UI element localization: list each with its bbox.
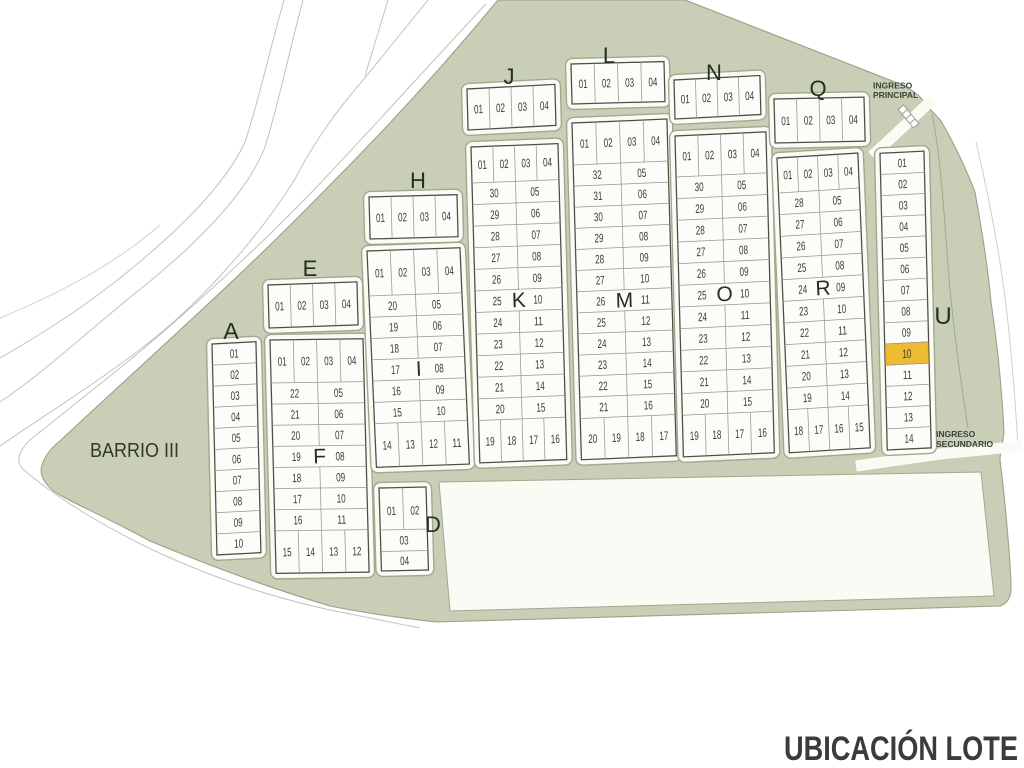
svg-text:20: 20 [495,402,505,416]
svg-text:12: 12 [741,330,751,344]
svg-text:03: 03 [627,135,637,149]
svg-text:24: 24 [493,316,503,330]
svg-text:04: 04 [347,354,357,368]
svg-text:15: 15 [643,377,653,391]
svg-text:05: 05 [737,178,747,192]
svg-text:22: 22 [699,353,709,367]
svg-text:Q: Q [809,76,826,101]
svg-text:02: 02 [602,76,612,90]
svg-text:06: 06 [433,319,443,333]
svg-text:04: 04 [849,113,859,127]
svg-text:03: 03 [826,113,836,127]
svg-text:29: 29 [695,202,705,216]
svg-text:02: 02 [398,265,408,279]
svg-text:04: 04 [899,219,908,233]
svg-text:20: 20 [588,432,598,446]
svg-text:04: 04 [342,297,352,311]
svg-text:04: 04 [745,89,754,103]
svg-text:26: 26 [697,267,707,281]
svg-text:21: 21 [290,408,300,422]
svg-text:11: 11 [903,368,912,382]
svg-text:01: 01 [376,211,386,225]
svg-text:16: 16 [293,513,303,527]
svg-text:13: 13 [329,545,339,559]
svg-text:03: 03 [324,354,334,368]
svg-text:01: 01 [375,266,385,280]
svg-text:19: 19 [690,429,700,443]
svg-text:05: 05 [530,185,540,199]
svg-text:11: 11 [741,308,751,322]
svg-text:J: J [504,64,515,89]
svg-text:23: 23 [598,358,608,372]
svg-text:O: O [716,283,733,307]
svg-text:18: 18 [794,424,804,439]
svg-text:07: 07 [335,428,345,442]
svg-text:18: 18 [507,434,517,448]
svg-text:19: 19 [612,431,622,445]
svg-text:07: 07 [638,208,648,222]
svg-text:05: 05 [232,431,241,445]
svg-text:18: 18 [292,471,302,485]
svg-text:INGRESO: INGRESO [936,429,976,439]
svg-text:23: 23 [698,331,708,345]
svg-text:28: 28 [696,223,706,237]
svg-text:25: 25 [797,261,807,276]
svg-text:D: D [425,512,441,537]
svg-text:05: 05 [637,166,647,180]
svg-text:07: 07 [531,228,541,242]
svg-text:08: 08 [532,249,542,263]
svg-text:08: 08 [434,361,444,375]
svg-text:13: 13 [406,437,416,451]
svg-text:09: 09 [533,271,543,285]
svg-text:01: 01 [898,156,907,170]
svg-text:12: 12 [429,437,439,451]
svg-text:13: 13 [535,357,545,371]
svg-text:SECUNDARIO: SECUNDARIO [936,439,994,449]
svg-text:14: 14 [382,438,392,452]
svg-text:23: 23 [494,337,504,351]
svg-text:03: 03 [728,147,738,161]
svg-text:04: 04 [400,554,410,568]
svg-text:11: 11 [452,436,462,450]
svg-text:11: 11 [534,314,544,328]
svg-text:17: 17 [659,429,669,443]
svg-text:21: 21 [495,380,505,394]
svg-text:06: 06 [232,452,241,466]
svg-text:10: 10 [640,271,650,285]
svg-text:19: 19 [389,320,399,334]
svg-text:10: 10 [336,492,346,506]
svg-text:30: 30 [489,186,499,200]
svg-text:32: 32 [593,168,603,182]
svg-text:16: 16 [834,421,844,436]
svg-text:12: 12 [839,345,849,360]
svg-text:09: 09 [435,383,445,397]
svg-text:02: 02 [496,101,505,115]
svg-text:E: E [303,256,318,281]
svg-text:02: 02 [603,136,613,150]
svg-text:15: 15 [536,400,546,414]
svg-text:29: 29 [490,208,500,222]
svg-text:29: 29 [594,231,604,245]
svg-text:09: 09 [639,250,649,264]
svg-text:14: 14 [642,356,652,370]
svg-text:14: 14 [904,431,913,445]
svg-text:14: 14 [306,545,316,559]
svg-text:03: 03 [319,298,329,312]
svg-text:02: 02 [301,354,311,368]
svg-text:08: 08 [901,304,910,318]
svg-text:04: 04 [750,146,760,160]
svg-text:14: 14 [536,379,546,393]
svg-text:13: 13 [742,351,752,365]
svg-text:I: I [415,358,422,381]
svg-text:U: U [934,303,951,330]
svg-text:13: 13 [642,335,652,349]
svg-text:25: 25 [597,316,607,330]
svg-text:27: 27 [596,273,606,287]
svg-text:16: 16 [392,384,402,398]
svg-text:27: 27 [696,245,706,259]
svg-text:14: 14 [742,373,752,387]
svg-text:18: 18 [390,341,400,355]
svg-text:08: 08 [835,258,845,273]
svg-text:23: 23 [799,304,809,319]
svg-text:24: 24 [798,282,808,297]
svg-text:15: 15 [392,405,402,419]
svg-text:02: 02 [297,298,307,312]
svg-text:03: 03 [625,76,635,90]
svg-text:21: 21 [801,347,811,362]
svg-text:04: 04 [442,209,452,223]
svg-text:05: 05 [334,386,344,400]
svg-text:10: 10 [837,302,847,317]
svg-text:17: 17 [735,427,745,441]
svg-text:02: 02 [410,503,420,517]
svg-text:21: 21 [599,400,609,414]
svg-text:10: 10 [533,292,543,306]
svg-text:M: M [615,289,633,313]
svg-text:04: 04 [543,155,553,169]
svg-text:28: 28 [595,252,605,266]
svg-text:16: 16 [644,398,654,412]
svg-text:INGRESO: INGRESO [873,81,913,91]
svg-text:18: 18 [712,428,722,442]
svg-text:17: 17 [391,363,401,377]
svg-text:01: 01 [474,102,483,116]
svg-text:04: 04 [445,264,455,278]
svg-text:30: 30 [594,210,604,224]
svg-text:03: 03 [518,100,527,114]
svg-text:25: 25 [492,294,502,308]
svg-text:02: 02 [803,167,813,182]
svg-text:02: 02 [230,368,239,382]
svg-text:16: 16 [551,432,561,446]
svg-text:24: 24 [698,310,708,324]
svg-text:03: 03 [899,198,908,212]
svg-text:01: 01 [277,355,287,369]
svg-text:30: 30 [694,180,704,194]
svg-text:08: 08 [233,494,242,508]
svg-text:22: 22 [290,386,300,400]
svg-text:06: 06 [334,407,344,421]
svg-text:03: 03 [399,533,409,547]
svg-text:12: 12 [352,544,362,558]
svg-text:05: 05 [832,193,842,208]
svg-text:02: 02 [702,91,711,105]
svg-text:02: 02 [705,148,715,162]
svg-text:05: 05 [900,241,909,255]
svg-text:03: 03 [421,265,431,279]
svg-text:R: R [815,277,831,301]
svg-text:09: 09 [739,265,749,279]
svg-text:07: 07 [901,283,910,297]
svg-text:19: 19 [485,434,495,448]
svg-text:BARRIO III: BARRIO III [90,440,179,462]
svg-text:10: 10 [902,347,911,361]
svg-text:01: 01 [781,114,791,128]
svg-text:27: 27 [491,251,501,265]
svg-text:17: 17 [529,433,539,447]
svg-text:06: 06 [738,200,748,214]
svg-text:01: 01 [578,77,588,91]
svg-text:09: 09 [336,470,346,484]
svg-text:15: 15 [743,395,753,409]
svg-text:01: 01 [681,92,690,106]
svg-text:13: 13 [904,410,913,424]
svg-text:22: 22 [598,379,608,393]
svg-text:10: 10 [234,536,243,550]
svg-text:01: 01 [682,149,692,163]
svg-text:20: 20 [700,396,710,410]
svg-text:12: 12 [534,336,544,350]
svg-text:01: 01 [275,299,285,313]
svg-text:05: 05 [432,297,442,311]
svg-text:03: 03 [420,210,430,224]
svg-text:03: 03 [231,389,240,403]
svg-text:07: 07 [834,237,844,252]
svg-text:19: 19 [292,450,302,464]
svg-text:20: 20 [802,369,812,384]
svg-text:11: 11 [838,323,848,338]
svg-text:F: F [313,445,326,468]
svg-text:22: 22 [800,326,810,341]
svg-text:26: 26 [492,272,502,286]
svg-text:01: 01 [478,158,488,172]
svg-text:24: 24 [597,337,607,351]
svg-text:01: 01 [230,347,239,361]
svg-text:10: 10 [436,404,446,418]
svg-text:26: 26 [796,239,806,254]
svg-text:06: 06 [638,187,648,201]
svg-text:11: 11 [337,513,347,527]
svg-text:25: 25 [697,288,707,302]
svg-text:06: 06 [833,215,843,230]
svg-text:14: 14 [841,388,851,403]
svg-text:03: 03 [823,165,833,180]
svg-text:09: 09 [902,325,911,339]
svg-text:08: 08 [639,229,649,243]
svg-text:01: 01 [387,504,397,518]
svg-text:28: 28 [491,229,501,243]
svg-text:17: 17 [293,492,303,506]
svg-text:08: 08 [335,449,345,463]
svg-text:15: 15 [854,420,864,435]
svg-text:K: K [511,289,526,313]
svg-text:02: 02 [398,210,408,224]
svg-text:27: 27 [795,217,805,232]
svg-text:UBICACIÓN LOTE: UBICACIÓN LOTE [784,730,1018,768]
svg-text:09: 09 [836,280,846,295]
svg-text:22: 22 [494,359,504,373]
svg-text:20: 20 [388,299,398,313]
svg-text:N: N [706,60,722,85]
svg-text:A: A [223,318,239,344]
svg-text:11: 11 [641,292,651,306]
svg-text:03: 03 [521,156,531,170]
svg-text:20: 20 [291,429,301,443]
svg-text:19: 19 [802,391,812,406]
svg-text:12: 12 [903,389,912,403]
svg-text:02: 02 [898,177,907,191]
svg-text:18: 18 [635,430,645,444]
svg-text:08: 08 [739,243,749,257]
svg-text:26: 26 [596,294,606,308]
svg-text:31: 31 [593,189,603,203]
svg-text:02: 02 [499,157,509,171]
svg-text:07: 07 [433,340,443,354]
svg-text:L: L [603,43,615,68]
svg-text:03: 03 [724,90,733,104]
svg-text:04: 04 [540,99,549,113]
svg-text:04: 04 [651,134,661,148]
svg-text:28: 28 [794,196,804,211]
svg-text:PRINCIPAL: PRINCIPAL [873,90,918,100]
svg-text:09: 09 [234,515,243,529]
svg-text:01: 01 [580,137,590,151]
svg-text:01: 01 [783,168,793,183]
svg-text:04: 04 [231,410,240,424]
svg-text:06: 06 [900,262,909,276]
svg-text:04: 04 [648,75,658,89]
svg-text:21: 21 [700,375,710,389]
svg-text:15: 15 [282,545,292,559]
svg-text:H: H [410,168,426,193]
svg-text:10: 10 [740,286,750,300]
svg-text:02: 02 [804,113,814,127]
svg-text:16: 16 [758,426,768,440]
svg-text:06: 06 [531,206,541,220]
svg-text:12: 12 [641,314,651,328]
svg-text:04: 04 [844,164,854,179]
svg-text:07: 07 [233,473,242,487]
svg-text:13: 13 [840,367,850,382]
svg-text:17: 17 [814,422,824,437]
svg-text:07: 07 [738,221,748,235]
